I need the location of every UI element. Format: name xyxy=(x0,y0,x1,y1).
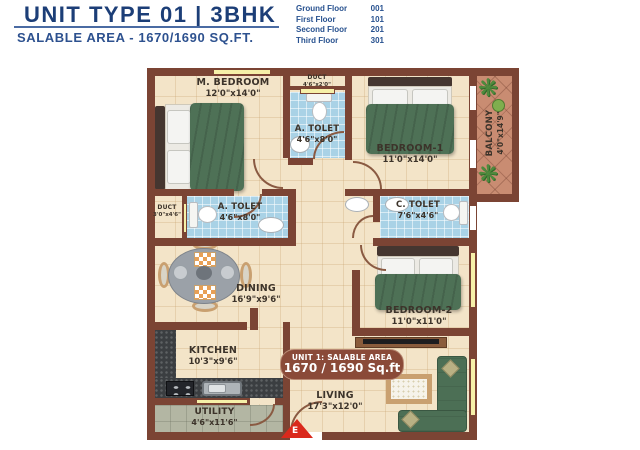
room-label-kitchen: KITCHEN 10'3"x9'6" xyxy=(168,345,258,368)
room-label-balcony: BALCONY 4'0"x14'9" xyxy=(485,93,505,173)
room-name: KITCHEN xyxy=(168,345,258,357)
wall-segment xyxy=(288,158,313,165)
room-dims: 7'6"x4'6" xyxy=(385,211,451,221)
badge-line2: 1670 / 1690 Sq.ft xyxy=(281,362,403,375)
room-label-duct-top: DUCT 4'6"x2'0" xyxy=(292,74,342,88)
wall-segment xyxy=(352,270,360,328)
title-underline xyxy=(14,26,279,28)
room-label-c-toilet: C. TOLET 7'6"x4'6" xyxy=(385,200,451,221)
floor-label: First Floor xyxy=(296,15,336,26)
dining-placemat xyxy=(194,285,216,300)
salable-area-subtitle: SALABLE AREA - 1670/1690 SQ.FT. xyxy=(17,30,254,45)
floor-label: Second Floor xyxy=(296,25,347,36)
bed-pillow xyxy=(167,110,191,144)
room-name: A. TOLET xyxy=(198,202,282,213)
room-name: LIVING xyxy=(295,390,375,402)
room-dims: 11'0"x11'0" xyxy=(379,317,459,328)
toilet-wc xyxy=(189,202,198,228)
room-dims: 10'3"x9'6" xyxy=(168,357,258,368)
room-name: DUCT xyxy=(152,204,182,212)
entrance-label: E xyxy=(292,426,298,436)
window xyxy=(470,358,476,416)
salable-area-badge: UNIT 1: SALABLE AREA 1670 / 1690 Sq.ft xyxy=(280,349,404,380)
bed-duvet xyxy=(190,103,244,191)
wall-segment xyxy=(373,238,477,246)
wall-segment xyxy=(250,308,258,330)
dining-plate xyxy=(220,265,235,280)
floor-number: 101 xyxy=(371,15,384,26)
room-name: BEDROOM-2 xyxy=(379,305,459,317)
room-name: C. TOLET xyxy=(385,200,451,211)
floor-directory-row: First Floor 101 xyxy=(296,15,384,26)
room-label-m-bedroom: M. BEDROOM 12'0"x14'0" xyxy=(173,77,293,100)
sliding-door-opening xyxy=(470,86,476,110)
floor-label: Ground Floor xyxy=(296,4,347,15)
room-label-a-toilet-top: A. TOLET 4'6"x8'0" xyxy=(291,124,343,145)
room-label-a-toilet-mid: A. TOLET 4'6"x8'0" xyxy=(198,202,282,223)
wall-segment xyxy=(275,398,290,405)
page-title: UNIT TYPE 01 | 3BHK xyxy=(24,2,276,28)
floor-directory-row: Third Floor 301 xyxy=(296,36,384,47)
room-dims: 4'0"x14'9" xyxy=(496,93,505,173)
floor-directory-row: Ground Floor 001 xyxy=(296,4,384,15)
room-label-bedroom-1: BEDROOM-1 11'0"x14'0" xyxy=(370,143,450,166)
wall-segment xyxy=(288,196,296,238)
room-dims: 17'3"x12'0" xyxy=(295,402,375,413)
toilet-wc xyxy=(459,201,468,225)
wall-segment xyxy=(147,432,290,440)
wash-basin xyxy=(345,197,369,212)
kitchen-sink-basin xyxy=(208,384,226,393)
wall-segment xyxy=(352,328,477,336)
bed-headboard xyxy=(155,106,165,190)
stove xyxy=(166,381,194,396)
room-name: DINING xyxy=(225,283,287,295)
room-dims: 3'0"x4'6" xyxy=(152,212,182,219)
room-dims: 11'0"x14'0" xyxy=(370,155,450,166)
wall-segment xyxy=(345,189,477,196)
toilet-wc xyxy=(312,102,327,121)
floor-directory-row: Second Floor 201 xyxy=(296,25,384,36)
window xyxy=(470,252,476,308)
room-label-dining: DINING 16'9"x9'6" xyxy=(225,283,287,306)
wall-segment xyxy=(477,194,519,202)
window xyxy=(183,203,187,233)
bed-pillow xyxy=(167,150,191,184)
room-name: UTILITY xyxy=(167,407,262,418)
room-dims: 4'6"x11'6" xyxy=(167,418,262,428)
wall-segment xyxy=(262,189,296,196)
room-name: M. BEDROOM xyxy=(173,77,293,89)
dining-table-center xyxy=(196,266,212,280)
wall-segment xyxy=(147,68,155,440)
dining-plate xyxy=(173,265,188,280)
floor-directory: Ground Floor 001 First Floor 101 Second … xyxy=(296,4,384,46)
wall-opening xyxy=(470,206,476,230)
window xyxy=(196,399,248,404)
wall-segment xyxy=(147,322,247,330)
room-dims: 4'6"x2'0" xyxy=(292,82,342,89)
room-dims: 4'6"x8'0" xyxy=(291,135,343,145)
floor-number: 201 xyxy=(371,25,384,36)
bed-headboard xyxy=(377,246,459,256)
room-name: BEDROOM-1 xyxy=(370,143,450,155)
room-dims: 12'0"x14'0" xyxy=(173,89,293,100)
room-label-living: LIVING 17'3"x12'0" xyxy=(295,390,375,413)
room-label-utility: UTILITY 4'6"x11'6" xyxy=(167,407,262,428)
room-dims: 4'6"x8'0" xyxy=(198,213,282,223)
wall-segment xyxy=(373,196,380,222)
window xyxy=(300,88,335,94)
room-label-bedroom-2: BEDROOM-2 11'0"x11'0" xyxy=(379,305,459,328)
toilet-wc xyxy=(306,93,332,102)
room-name: A. TOLET xyxy=(291,124,343,135)
floor-number: 301 xyxy=(371,36,384,47)
entrance-marker: E xyxy=(281,419,315,439)
floor-number: 001 xyxy=(371,4,384,15)
wall-segment xyxy=(345,68,352,160)
window xyxy=(213,69,271,75)
room-dims: 16'9"x9'6" xyxy=(225,295,287,306)
floor-label: Third Floor xyxy=(296,36,338,47)
dining-placemat xyxy=(194,252,216,267)
wall-segment xyxy=(322,432,477,440)
wall-segment xyxy=(147,189,234,196)
sliding-door-opening xyxy=(470,140,476,168)
wall-segment xyxy=(147,238,296,246)
wall-segment xyxy=(512,68,519,202)
room-name: DUCT xyxy=(292,74,342,82)
tv xyxy=(363,339,439,344)
room-label-duct-mid: DUCT 3'0"x4'6" xyxy=(152,204,182,218)
room-name: BALCONY xyxy=(485,93,496,173)
